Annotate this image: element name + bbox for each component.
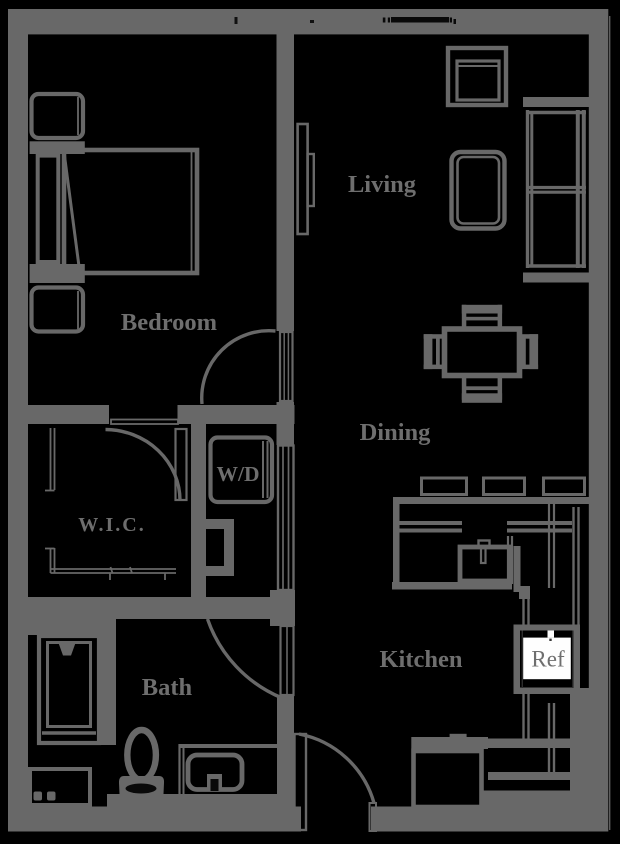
svg-text:W/D: W/D	[217, 462, 260, 486]
svg-text:Living: Living	[348, 171, 417, 198]
svg-text:Kitchen: Kitchen	[379, 646, 462, 673]
svg-text:W.I.C.: W.I.C.	[78, 514, 145, 536]
svg-text:Bath: Bath	[142, 674, 193, 701]
svg-text:Bedroom: Bedroom	[121, 309, 217, 336]
svg-text:Ref: Ref	[531, 647, 565, 672]
svg-text:Dining: Dining	[360, 419, 432, 446]
